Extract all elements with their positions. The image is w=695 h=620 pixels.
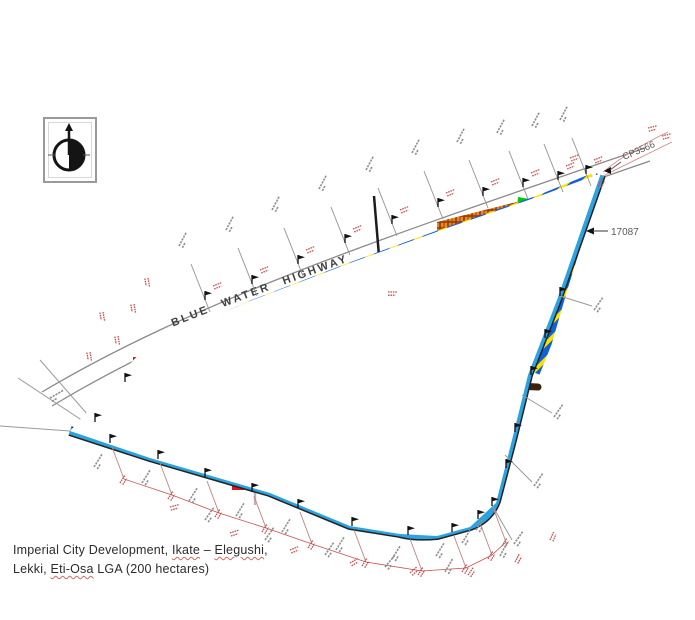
survey-dim-mark: [87, 352, 92, 361]
caption-etiosa: Eti-Osa: [51, 562, 94, 576]
callout-right-edge: 17087: [586, 227, 639, 238]
north-arrow: [44, 118, 96, 182]
survey-dim-mark: [400, 207, 410, 213]
survey-dim-mark: [468, 568, 476, 577]
survey-station-mark: [560, 106, 571, 122]
access-stub-road: [374, 196, 379, 256]
survey-dim-mark: [131, 304, 136, 313]
survey-dim-mark: [418, 567, 425, 576]
survey-station-mark: [205, 507, 217, 522]
survey-dim-mark: [550, 532, 557, 542]
survey-dim-mark: [213, 283, 223, 289]
survey-flag-icon: [523, 178, 530, 187]
survey-station-mark: [179, 232, 190, 248]
survey-dim-mark: [262, 524, 269, 533]
caption: Imperial City Development, Ikate – Elegu…: [13, 541, 373, 579]
caption-line1: Imperial City Development, Ikate – Elegu…: [13, 541, 373, 560]
survey-station-mark: [534, 473, 546, 488]
survey-station-mark: [189, 487, 201, 503]
survey-dim-mark: [353, 226, 363, 232]
survey-station-mark: [497, 119, 508, 135]
survey-station-mark: [226, 216, 237, 232]
survey-station-mark: [554, 404, 566, 419]
survey-dim-mark: [531, 170, 541, 176]
caption-ikate: Ikate: [172, 543, 200, 557]
survey-dim-mark: [145, 278, 150, 287]
survey-station-mark: [445, 558, 456, 574]
survey-dim-mark: [515, 554, 522, 563]
survey-dim-mark: [100, 312, 105, 321]
survey-station-mark: [392, 545, 404, 561]
survey-flag-icon: [252, 275, 259, 284]
survey-station-mark: [514, 531, 526, 546]
survey-station-mark: [457, 128, 468, 144]
survey-station-mark: [594, 297, 606, 312]
survey-flag-icon: [392, 215, 399, 224]
survey-dim-mark: [115, 336, 120, 345]
site-plan-svg: BLUE WATER HIGHWAY: [0, 0, 695, 620]
survey-station-mark: [282, 518, 294, 534]
callout-apex: CP3566: [604, 139, 657, 174]
survey-flag-icon: [345, 234, 352, 243]
survey-dim-mark: [170, 505, 180, 510]
callout-apex-label: CP3566: [621, 139, 657, 163]
survey-flag-icon: [298, 255, 305, 264]
survey-dim-mark: [446, 190, 456, 196]
site-boundary-outline: [70, 173, 601, 536]
survey-station-mark: [319, 175, 330, 191]
survey-flag-icon: [438, 198, 445, 207]
survey-station-mark: [272, 196, 283, 212]
survey-flag-icon: [205, 291, 212, 300]
survey-dim-mark: [230, 530, 240, 536]
survey-flag-icon: [483, 187, 490, 196]
survey-station-mark: [532, 112, 543, 128]
survey-station-mark: [366, 156, 377, 172]
survey-dim-mark: [168, 491, 175, 500]
map-figure: BLUE WATER HIGHWAY: [0, 0, 695, 620]
survey-dim-mark: [570, 155, 580, 161]
survey-dim-mark: [410, 567, 419, 575]
survey-station-mark: [500, 542, 511, 558]
survey-station-mark: [236, 502, 248, 518]
survey-station-mark: [142, 469, 154, 485]
survey-dim-mark: [306, 247, 316, 253]
survey-dim-mark: [120, 475, 127, 484]
callout-right-edge-label: 17087: [611, 227, 639, 238]
survey-station-mark: [436, 542, 448, 558]
survey-station-mark: [94, 453, 106, 469]
survey-dim-mark: [215, 509, 222, 518]
survey-dim-mark: [566, 163, 576, 169]
survey-dim-mark: [260, 267, 270, 273]
survey-dim-mark: [491, 179, 501, 185]
survey-dim-mark: [462, 564, 469, 573]
caption-line2: Lekki, Eti-Osa LGA (200 hectares): [13, 560, 373, 579]
caption-elegushi: Elegushi: [215, 543, 265, 557]
survey-station-mark: [412, 139, 423, 155]
survey-dim-mark: [648, 126, 658, 131]
